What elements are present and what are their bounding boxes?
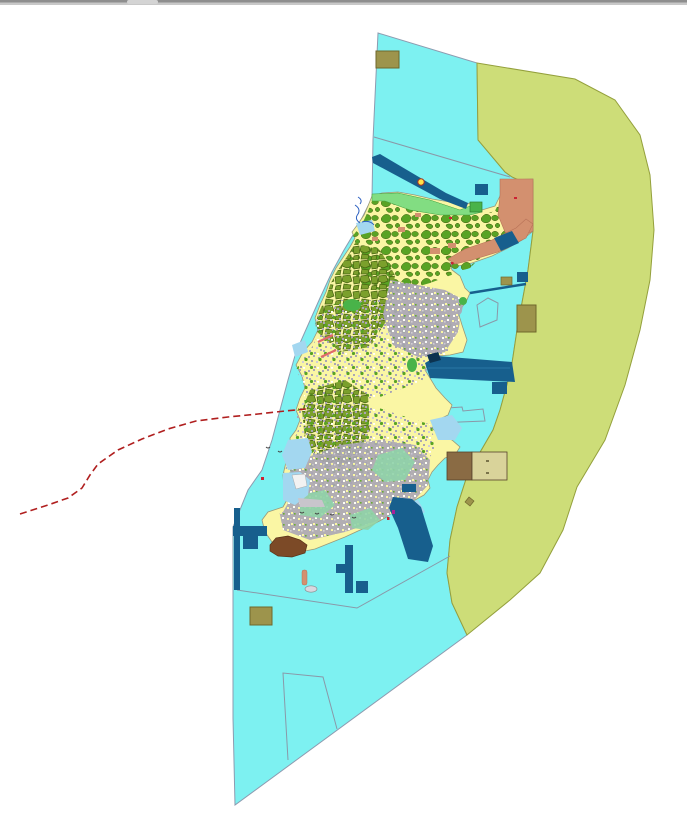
harbor-block-ne1 bbox=[475, 184, 488, 195]
magenta-dot bbox=[392, 510, 395, 514]
salmon-sliver bbox=[302, 570, 307, 585]
pier-south-square bbox=[356, 581, 368, 593]
survey-block-tan bbox=[472, 452, 507, 480]
green-block-north bbox=[470, 202, 482, 212]
harbor-block-e bbox=[492, 382, 507, 394]
khaki-block-south bbox=[250, 607, 272, 625]
jetty-west-strip bbox=[234, 508, 240, 590]
khaki-block-top bbox=[376, 51, 399, 68]
map-canvas[interactable] bbox=[0, 5, 687, 821]
pier-south-small bbox=[336, 564, 345, 573]
red-dot-5 bbox=[514, 197, 517, 199]
pier-south-bar bbox=[345, 545, 353, 593]
islet-gray bbox=[305, 586, 317, 592]
splitter-drag-handle[interactable] bbox=[127, 0, 158, 4]
red-dot-3 bbox=[451, 262, 454, 265]
khaki-block-ne-small bbox=[501, 277, 512, 285]
survey-block bbox=[447, 452, 507, 480]
jetty-west-block bbox=[243, 536, 258, 549]
survey-block-brown bbox=[447, 452, 472, 480]
buoy-symbol bbox=[418, 179, 424, 185]
red-dot-1 bbox=[261, 477, 264, 480]
map-viewport[interactable] bbox=[0, 0, 687, 821]
pier-se-head bbox=[402, 484, 416, 492]
red-dot-4 bbox=[449, 217, 452, 219]
harbor-block-ne2 bbox=[517, 272, 528, 282]
khaki-block-east bbox=[517, 305, 536, 332]
red-dot-2 bbox=[387, 517, 390, 520]
